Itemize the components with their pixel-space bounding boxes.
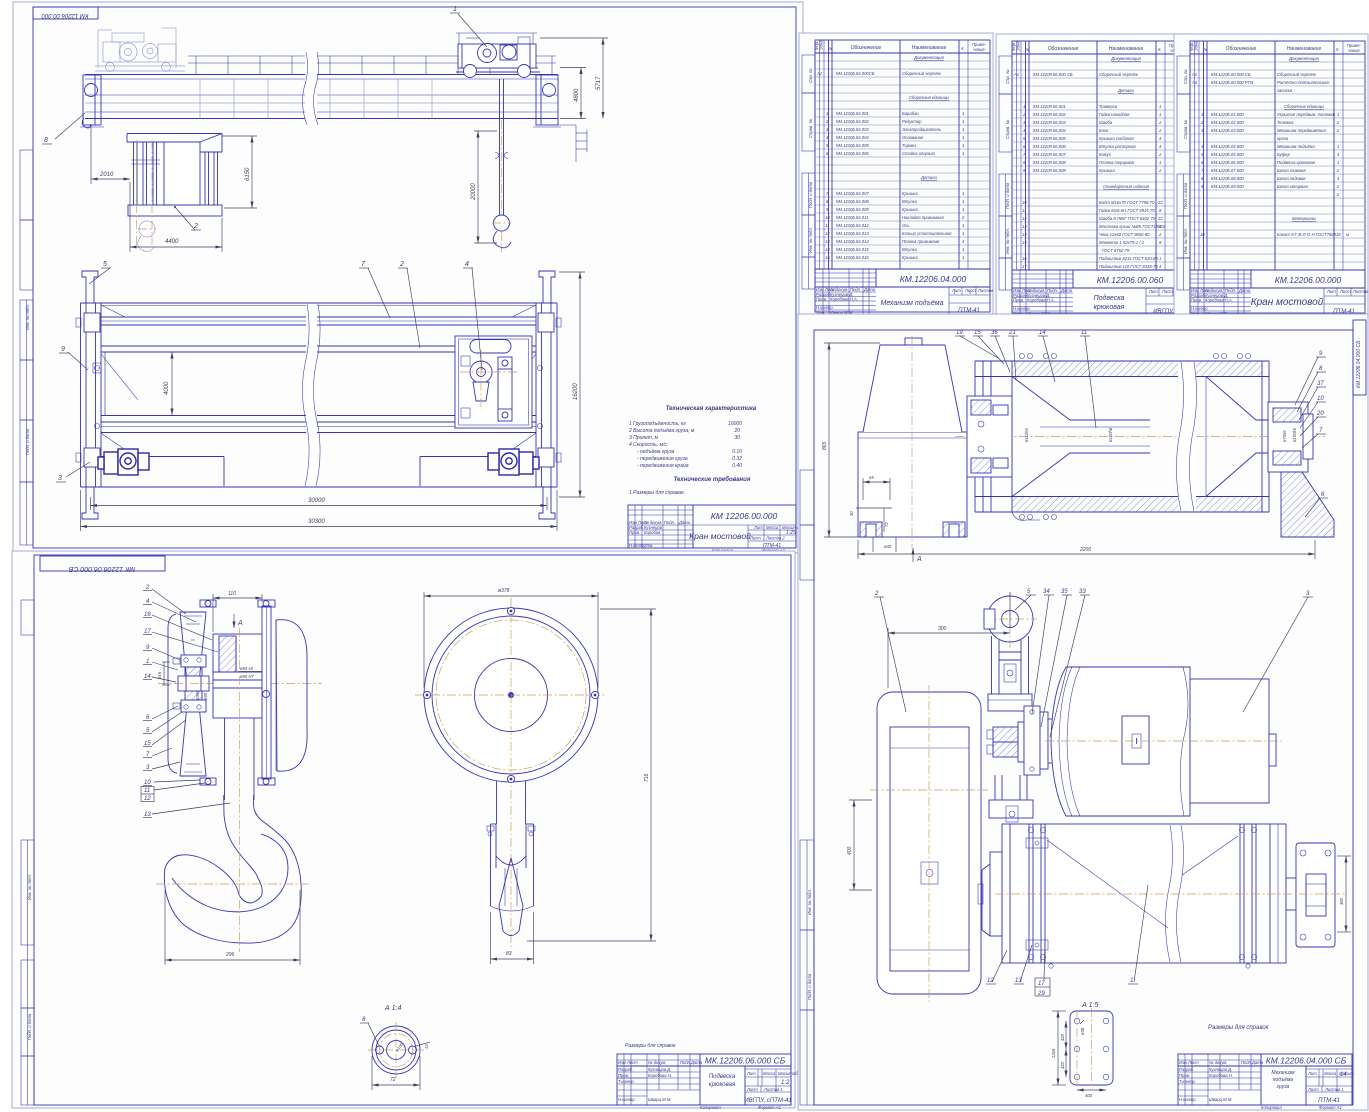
svg-text:Крышка: Крышка <box>902 191 918 196</box>
svg-text:Блок: Блок <box>1099 128 1109 133</box>
svg-text:Лит: Лит <box>753 525 763 530</box>
svg-text:КМ.12206.00.000: КМ.12206.00.000 <box>1275 275 1342 285</box>
svg-text:0.40: 0.40 <box>732 463 742 469</box>
svg-text:6150: 6150 <box>245 167 251 181</box>
svg-text:Гайка накидная: Гайка накидная <box>1099 112 1130 117</box>
svg-text:5: 5 <box>103 261 107 268</box>
svg-text:Укрытие передвиж. тележки: Укрытие передвиж. тележки <box>1277 112 1336 117</box>
svg-text:1: 1 <box>1337 112 1339 117</box>
svg-text:Подшипник 110 ГОСТ 8338-75: Подшипник 110 ГОСТ 8338-75 <box>1099 264 1158 269</box>
svg-text:2: 2 <box>193 223 198 230</box>
svg-text:ø16: ø16 <box>157 671 162 679</box>
svg-text:Масшт.: Масшт. <box>1339 1071 1355 1076</box>
svg-text:Балка концевая: Балка концевая <box>1277 184 1309 189</box>
svg-text:1: 1 <box>1159 256 1161 261</box>
svg-text:А1: А1 <box>816 71 822 76</box>
svg-text:Втулка: Втулка <box>902 199 918 204</box>
svg-text:13: 13 <box>1022 224 1027 229</box>
svg-text:Детали: Детали <box>1117 88 1134 93</box>
svg-text:А1: А1 <box>1013 72 1019 77</box>
svg-text:Лист: Лист <box>1307 1087 1319 1092</box>
svg-text:Тележка: Тележка <box>1277 120 1294 125</box>
svg-text:10: 10 <box>1022 200 1027 205</box>
svg-text:КМ.12209.06.007: КМ.12209.06.007 <box>1033 152 1066 157</box>
svg-text:20: 20 <box>733 428 740 434</box>
svg-text:Пров.: Пров. <box>618 1073 629 1078</box>
svg-text:420: 420 <box>1060 1033 1065 1041</box>
svg-text:КМ.12209.06.001: КМ.12209.06.001 <box>1033 104 1066 109</box>
svg-text:КМ.12206.04.002: КМ.12206.04.002 <box>836 119 869 124</box>
svg-text:Копировал: Копировал <box>700 1105 721 1110</box>
svg-text:Подп. и дата: Подп. и дата <box>25 428 30 455</box>
svg-text:Пров.: Пров. <box>1179 1073 1190 1078</box>
svg-text:КМ.12206.04.014: КМ.12206.04.014 <box>836 239 869 244</box>
svg-text:Масленка крыш.№ВК ГОСТ19853: Масленка крыш.№ВК ГОСТ19853 <box>1099 224 1166 229</box>
svg-text:крюковая: крюковая <box>1094 304 1125 311</box>
svg-text:17: 17 <box>144 629 151 635</box>
svg-text:716: 716 <box>644 773 650 782</box>
svg-text:10: 10 <box>825 215 830 220</box>
svg-text:крюковая: крюковая <box>709 1082 736 1088</box>
svg-text:10: 10 <box>1200 232 1205 237</box>
svg-text:Крышка скобяная: Крышка скобяная <box>1099 136 1134 141</box>
svg-text:34: 34 <box>1043 589 1050 595</box>
svg-text:Лист: Лист <box>746 1087 758 1092</box>
svg-text:КМ.12206.04.000 СБ: КМ.12206.04.000 СБ <box>1266 1056 1347 1066</box>
svg-text:записка: записка <box>1276 88 1293 93</box>
svg-text:Инв. № подл.: Инв. № подл. <box>25 304 30 330</box>
svg-text:Масса: Масса <box>766 525 779 530</box>
svg-text:2 Высота подъёма груза, м: 2 Высота подъёма груза, м <box>628 428 695 434</box>
svg-text:ГОСТ 8752-79: ГОСТ 8752-79 <box>1102 248 1130 253</box>
svg-text:Гайка М16-6Н ГОСТ 5915-70: Гайка М16-6Н ГОСТ 5915-70 <box>1099 208 1155 213</box>
svg-text:Н.контр.: Н.контр. <box>1179 1097 1197 1102</box>
svg-text:16: 16 <box>1336 232 1341 237</box>
svg-text:1: 1 <box>953 290 955 295</box>
svg-text:Техническая характеристика: Техническая характеристика <box>666 406 757 412</box>
svg-text:ø378: ø378 <box>498 588 510 594</box>
svg-text:КМ.12206.08.000: КМ.12206.08.000 <box>1211 176 1244 181</box>
svg-text:КМ.12206.04.006: КМ.12206.04.006 <box>836 151 869 156</box>
svg-text:Крышка: Крышка <box>1099 168 1115 173</box>
svg-text:КМ.12209.06.006: КМ.12209.06.006 <box>1033 144 1066 149</box>
svg-text:14: 14 <box>825 247 830 252</box>
svg-text:1: 1 <box>962 223 964 228</box>
svg-text:22: 22 <box>1157 216 1163 221</box>
svg-text:35: 35 <box>1061 589 1068 595</box>
svg-text:1: 1 <box>453 6 457 13</box>
svg-text:13: 13 <box>825 239 830 244</box>
svg-text:Подвеска: Подвеска <box>709 1074 736 1080</box>
svg-text:ø90: ø90 <box>203 692 208 700</box>
svg-text:Подп. и дата: Подп. и дата <box>807 973 812 1000</box>
svg-text:1: 1 <box>1159 104 1161 109</box>
svg-text:КМ.12206.04.015: КМ.12206.04.015 <box>836 247 869 252</box>
svg-text:Шайба 8 Л65Г ГОСТ 6402-70: Шайба 8 Л65Г ГОСТ 6402-70 <box>1099 216 1156 221</box>
svg-text:400: 400 <box>1085 1093 1093 1098</box>
svg-text:Стандартные изделия: Стандартные изделия <box>1103 184 1150 189</box>
svg-text:КМ.12209.06.004: КМ.12209.06.004 <box>1033 128 1066 133</box>
svg-text:Кузнецов Д.: Кузнецов Д. <box>1209 1067 1232 1072</box>
svg-text:1: 1 <box>1159 112 1161 117</box>
svg-text:16000: 16000 <box>728 421 742 427</box>
svg-text:КМ.12206.07.000: КМ.12206.07.000 <box>1211 168 1244 173</box>
svg-text:Подп. и дата: Подп. и дата <box>27 1013 32 1040</box>
svg-text:1: 1 <box>962 199 964 204</box>
svg-text:Траверса: Траверса <box>1099 104 1118 109</box>
svg-text:КМ.12209.06.000 СБ: КМ.12209.06.000 СБ <box>1033 72 1073 77</box>
svg-text:Накладка прижимная: Накладка прижимная <box>902 215 944 220</box>
svg-text:КМ.12206.04.003: КМ.12206.04.003 <box>836 127 869 132</box>
svg-text:Болт М16х70 ГОСТ 7798-70: Болт М16х70 ГОСТ 7798-70 <box>1099 200 1155 205</box>
svg-text:1: 1 <box>962 247 964 252</box>
svg-text:15: 15 <box>825 255 830 260</box>
svg-text:КМ.12206.04.016: КМ.12206.04.016 <box>836 255 869 260</box>
svg-text:КМ.12209.06.005: КМ.12209.06.005 <box>1033 136 1066 141</box>
svg-text:КМ.12209.06.003: КМ.12209.06.003 <box>1033 120 1066 125</box>
svg-text:Листов 2: Листов 2 <box>765 536 785 541</box>
svg-text:12: 12 <box>987 978 994 984</box>
svg-text:Втулка распорная: Втулка распорная <box>1099 144 1136 149</box>
svg-text:груза: груза <box>1277 1084 1290 1090</box>
svg-text:30300: 30300 <box>308 519 325 525</box>
svg-text:1: 1 <box>1159 160 1161 165</box>
svg-text:33: 33 <box>1079 589 1086 595</box>
svg-text:1: 1 <box>962 151 964 156</box>
svg-text:А: А <box>916 556 922 563</box>
svg-text:№ докум.: № докум. <box>648 1060 666 1065</box>
svg-text:А 1:5: А 1:5 <box>1081 1002 1098 1009</box>
svg-text:2010: 2010 <box>99 172 114 178</box>
svg-text:0.32: 0.32 <box>732 456 742 462</box>
svg-text:Материалы: Материалы <box>1292 216 1316 221</box>
svg-text:КМ.12206.06.000: КМ.12206.06.000 <box>1211 160 1244 165</box>
svg-text:Механизм передвижения: Механизм передвижения <box>1277 128 1326 133</box>
svg-text:1:2: 1:2 <box>781 1080 790 1086</box>
svg-text:Подвеска крюковая: Подвеска крюковая <box>1277 160 1316 165</box>
svg-text:ø75k6: ø75k6 <box>1282 430 1287 442</box>
svg-text:Подшипник 8211 ГОСТ 520-89: Подшипник 8211 ГОСТ 520-89 <box>1099 256 1158 261</box>
svg-text:ø30: ø30 <box>884 544 892 549</box>
svg-text:20000: 20000 <box>471 183 477 201</box>
svg-text:Крышка: Крышка <box>902 255 918 260</box>
svg-text:420: 420 <box>1060 1061 1065 1069</box>
svg-text:крана: крана <box>1277 136 1289 141</box>
svg-text:КМ.12206.04.000: КМ.12206.04.000 <box>1211 144 1244 149</box>
svg-text:Коробова Н.: Коробова Н. <box>1209 1073 1233 1078</box>
svg-text:КМ.12206.01.000: КМ.12206.01.000 <box>1211 112 1244 117</box>
svg-text:30: 30 <box>734 435 740 441</box>
svg-text:36: 36 <box>991 330 998 336</box>
svg-text:ПТМ-41: ПТМ-41 <box>958 308 980 314</box>
svg-text:КМ.12206.09.000: КМ.12206.09.000 <box>1211 184 1244 189</box>
svg-text:Электродвигатель: Электродвигатель <box>902 127 941 132</box>
svg-text:ø90 Н7: ø90 Н7 <box>240 674 254 679</box>
svg-text:1: 1 <box>962 207 964 212</box>
svg-text:Сборочный чертёж: Сборочный чертёж <box>1099 72 1139 77</box>
svg-text:Изм Лист: Изм Лист <box>1179 1060 1199 1065</box>
svg-text:Лит: Лит <box>746 1071 756 1076</box>
svg-text:30000: 30000 <box>308 498 325 504</box>
svg-text:1269: 1269 <box>1051 1048 1056 1058</box>
svg-text:Сборочные единицы: Сборочные единицы <box>1284 104 1324 109</box>
svg-text:КМ.12206.04.000: КМ.12206.04.000 <box>900 274 967 284</box>
svg-text:29: 29 <box>1037 991 1045 997</box>
svg-text:КМ.12206.04.013: КМ.12206.04.013 <box>836 231 869 236</box>
svg-text:37: 37 <box>1317 381 1324 387</box>
svg-text:Редуктор: Редуктор <box>902 119 922 124</box>
svg-text:1 Грузоподъёмность, кг: 1 Грузоподъёмность, кг <box>629 421 686 427</box>
svg-text:1: 1 <box>962 135 964 140</box>
svg-text:Шайба: Шайба <box>1099 120 1113 125</box>
svg-text:4: 4 <box>465 261 469 268</box>
svg-text:Планка торцевая: Планка торцевая <box>1099 160 1135 165</box>
svg-text:65: 65 <box>869 475 874 480</box>
svg-text:ø396: ø396 <box>195 690 200 700</box>
svg-text:Крышка: Крышка <box>902 207 918 212</box>
svg-text:14: 14 <box>424 1044 429 1049</box>
svg-text:№ докум.: № докум. <box>1209 1060 1227 1065</box>
svg-text:А: А <box>237 620 243 627</box>
svg-text:Кольцо уплотнительное: Кольцо уплотнительное <box>902 231 952 236</box>
svg-text:1: 1 <box>962 191 964 196</box>
svg-text:- передвижения груза: - передвижения груза <box>637 456 688 462</box>
svg-text:Т.контр.: Т.контр. <box>618 1079 635 1084</box>
svg-text:2: 2 <box>874 591 879 597</box>
svg-text:Ось: Ось <box>902 223 910 228</box>
svg-text:1: 1 <box>962 119 964 124</box>
svg-text:Чека 12х60 ГОСТ 9650-80: Чека 12х60 ГОСТ 9650-80 <box>1099 232 1150 237</box>
svg-text:КМ.12206.04.008: КМ.12206.04.008 <box>836 199 869 204</box>
svg-text:2: 2 <box>399 261 404 268</box>
svg-text:2: 2 <box>145 585 150 591</box>
svg-text:КМ.12206.00.000 РПЗ: КМ.12206.00.000 РПЗ <box>1211 80 1254 85</box>
svg-text:Листов 1: Листов 1 <box>1324 1087 1344 1092</box>
svg-text:МК.12206.06.000 СБ: МК.12206.06.000 СБ <box>705 1056 786 1066</box>
svg-text:4000: 4000 <box>164 381 170 395</box>
svg-text:1: 1 <box>1337 160 1339 165</box>
svg-text:72: 72 <box>390 1077 396 1083</box>
svg-text:Канат 9-Г-В-Л-О-Н ГОСТ7668: Канат 9-Г-В-Л-О-Н ГОСТ7668 <box>1277 232 1337 237</box>
svg-text:Утв.: Утв. <box>644 543 654 548</box>
svg-text:Сборочный чертёж: Сборочный чертёж <box>902 71 942 76</box>
svg-text:300: 300 <box>938 626 947 632</box>
svg-text:КМ.12206.04.004: КМ.12206.04.004 <box>836 135 869 140</box>
svg-text:1: 1 <box>1159 224 1161 229</box>
svg-text:Инв. № подл.: Инв. № подл. <box>807 889 812 915</box>
svg-text:12: 12 <box>144 796 151 802</box>
svg-text:72: 72 <box>884 522 889 527</box>
svg-text:Подп.: Подп. <box>1241 1060 1252 1065</box>
svg-text:Механизм подъёма: Механизм подъёма <box>881 299 944 307</box>
svg-text:10: 10 <box>144 780 151 786</box>
svg-text:21: 21 <box>1008 330 1016 336</box>
svg-text:Дата: Дата <box>1251 1060 1264 1065</box>
svg-text:5717: 5717 <box>596 76 602 90</box>
svg-text:КМ.12209.06.002: КМ.12209.06.002 <box>1033 112 1066 117</box>
svg-text:4400: 4400 <box>165 239 179 245</box>
svg-text:Размеры для справок: Размеры для справок <box>1208 1025 1270 1031</box>
svg-text:11: 11 <box>144 788 150 794</box>
svg-text:КМ.12209.06.008: КМ.12209.06.008 <box>1033 160 1066 165</box>
svg-text:Подп.: Подп. <box>680 1060 691 1065</box>
svg-text:Разраб.: Разраб. <box>618 1067 633 1072</box>
svg-text:11: 11 <box>1081 330 1087 336</box>
svg-text:Тормоз: Тормоз <box>902 143 916 148</box>
svg-text:ø112k6: ø112k6 <box>1024 428 1029 442</box>
svg-text:ø100k6: ø100k6 <box>1292 427 1297 442</box>
svg-text:1: 1 <box>962 111 964 116</box>
svg-text:9: 9 <box>61 346 65 353</box>
svg-text:А1: А1 <box>1191 72 1197 77</box>
svg-text:12: 12 <box>825 231 830 236</box>
svg-text:1: 1 <box>1130 978 1133 984</box>
svg-text:400: 400 <box>847 846 853 855</box>
svg-text:Детали: Детали <box>920 175 937 180</box>
svg-text:10: 10 <box>1317 396 1324 402</box>
svg-text:Расчётно-пояснительная: Расчётно-пояснительная <box>1277 80 1329 85</box>
svg-text:22: 22 <box>1157 200 1163 205</box>
svg-text:16: 16 <box>1022 256 1027 261</box>
svg-text:КМ.12206.04.000 СБ: КМ.12206.04.000 СБ <box>1356 340 1362 388</box>
svg-text:Коробов: Коробов <box>644 530 661 535</box>
svg-text:Кузнецов Д.: Кузнецов Д. <box>648 1067 671 1072</box>
svg-text:А 1:4: А 1:4 <box>384 1005 401 1012</box>
svg-text:Механизм подъёма: Механизм подъёма <box>1277 144 1315 149</box>
svg-text:15: 15 <box>144 741 151 747</box>
svg-text:Пров.: Пров. <box>629 530 640 535</box>
svg-text:4800: 4800 <box>574 88 580 102</box>
svg-text:Кран мостовой: Кран мостовой <box>689 531 751 541</box>
svg-text:360: 360 <box>1339 897 1344 905</box>
svg-text:Лист: Лист <box>749 536 761 541</box>
svg-text:3 Пролет, м: 3 Пролет, м <box>629 435 659 441</box>
svg-text:Подп.: Подп. <box>664 520 675 525</box>
svg-text:Копировал: Копировал <box>1261 1105 1282 1110</box>
svg-text:83: 83 <box>506 951 512 957</box>
svg-text:Т.контр.: Т.контр. <box>1179 1079 1196 1084</box>
svg-text:Формат А1: Формат А1 <box>1319 1105 1342 1110</box>
svg-text:0.10: 0.10 <box>732 449 742 455</box>
svg-text:Масштаб: Масштаб <box>778 1071 798 1076</box>
svg-text:КМ.12206.05.000: КМ.12206.05.000 <box>1211 152 1244 157</box>
svg-text:Масса: Масса <box>763 1071 776 1076</box>
svg-text:14: 14 <box>1039 330 1046 336</box>
svg-text:13: 13 <box>144 812 151 818</box>
svg-text:Документация: Документация <box>913 55 944 60</box>
svg-text:1: 1 <box>962 255 964 260</box>
svg-text:1: 1 <box>146 659 149 665</box>
svg-text:Коробова Н.: Коробова Н. <box>648 1073 672 1078</box>
svg-text:Масса: Масса <box>1324 1071 1337 1076</box>
svg-text:13: 13 <box>1015 978 1022 984</box>
svg-text:Буфер: Буфер <box>1277 152 1291 157</box>
svg-text:Балка ходовая: Балка ходовая <box>1277 176 1306 181</box>
svg-text:110: 110 <box>228 591 236 597</box>
svg-text:15: 15 <box>974 330 981 336</box>
svg-text:Документация: Документация <box>1110 56 1141 61</box>
svg-text:Барабан: Барабан <box>902 111 919 116</box>
svg-text:Механизм: Механизм <box>1271 1070 1295 1076</box>
svg-text:20: 20 <box>1316 411 1324 417</box>
svg-text:КМ.12206.00.000 СБ: КМ.12206.00.000 СБ <box>1211 72 1251 77</box>
svg-text:КМ.12206.02.000: КМ.12206.02.000 <box>1211 120 1244 125</box>
svg-text:КМ.12206.03.000: КМ.12206.03.000 <box>1211 128 1244 133</box>
svg-text:Листов 1: Листов 1 <box>763 1087 783 1092</box>
svg-text:Подвеска: Подвеска <box>1094 294 1125 302</box>
svg-text:30: 30 <box>849 511 854 516</box>
svg-text:Шварц М.М.: Шварц М.М. <box>648 1097 671 1102</box>
svg-text:КМ.12206.04.000СБ: КМ.12206.04.000СБ <box>836 71 875 76</box>
svg-text:16200: 16200 <box>573 383 579 400</box>
svg-text:2200: 2200 <box>1079 547 1091 553</box>
svg-text:1:25: 1:25 <box>786 530 796 536</box>
svg-text:Балка главная: Балка главная <box>1277 168 1306 173</box>
svg-text:КМ.12206.04.005: КМ.12206.04.005 <box>836 143 869 148</box>
svg-text:19: 19 <box>956 330 963 336</box>
svg-text:1 Размеры для справок.: 1 Размеры для справок. <box>629 490 685 496</box>
svg-text:КМ.12206.04.001: КМ.12206.04.001 <box>836 111 869 116</box>
svg-text:Дата: Дата <box>678 520 691 525</box>
svg-text:17: 17 <box>1038 981 1045 987</box>
svg-text:1: 1 <box>1337 144 1339 149</box>
svg-text:8: 8 <box>44 137 48 144</box>
svg-text:м: м <box>1346 232 1349 237</box>
svg-text:- подъёма груза: - подъёма груза <box>637 449 675 455</box>
svg-text:12: 12 <box>1022 216 1027 221</box>
svg-text:Разраб.: Разраб. <box>1179 1067 1194 1072</box>
svg-text:Сборочные единицы: Сборочные единицы <box>909 95 949 100</box>
svg-text:17: 17 <box>1022 264 1027 269</box>
svg-text:Основание: Основание <box>902 135 924 140</box>
svg-text:1: 1 <box>962 231 964 236</box>
svg-text:Манжета 1-52х75-1 / 2: Манжета 1-52х75-1 / 2 <box>1099 240 1145 245</box>
svg-text:1: 1 <box>1201 112 1203 117</box>
svg-text:КМ 12206.00.000: КМ 12206.00.000 <box>711 511 778 521</box>
svg-text:Стойка опорная: Стойка опорная <box>902 151 936 156</box>
svg-text:Кожух: Кожух <box>1099 152 1112 157</box>
svg-text:1: 1 <box>962 143 964 148</box>
svg-text:Шварц М.М.: Шварц М.М. <box>1209 1097 1232 1102</box>
svg-text:ИВГПУ, сПТМ-41: ИВГПУ, сПТМ-41 <box>744 1098 791 1104</box>
svg-text:Н.контр.: Н.контр. <box>618 1097 636 1102</box>
svg-text:А4: А4 <box>1191 80 1198 85</box>
svg-text:14: 14 <box>144 674 151 680</box>
svg-text:Втулка: Втулка <box>902 247 918 252</box>
svg-text:1: 1 <box>1023 104 1025 109</box>
svg-text:КМ 12206.00.000: КМ 12206.00.000 <box>41 12 89 18</box>
svg-text:Планка прижимная: Планка прижимная <box>902 239 940 244</box>
svg-text:Документация: Документация <box>1288 56 1319 61</box>
svg-text:КМ.12206.04.009: КМ.12206.04.009 <box>836 207 869 212</box>
svg-text:Кран мостовой: Кран мостовой <box>1251 297 1324 308</box>
svg-text:Технические требования: Технические требования <box>674 476 751 483</box>
svg-text:865: 865 <box>822 441 828 450</box>
svg-text:Изм Лист: Изм Лист <box>618 1060 638 1065</box>
svg-text:11: 11 <box>825 223 829 228</box>
svg-text:14: 14 <box>1022 232 1027 237</box>
svg-text:КМ.12209.06.009: КМ.12209.06.009 <box>1033 168 1066 173</box>
svg-text:15: 15 <box>1022 240 1027 245</box>
svg-text:1: 1 <box>962 127 964 132</box>
svg-text:КМ.12206.00.060: КМ.12206.00.060 <box>1097 275 1164 285</box>
svg-text:Инв. № подл.: Инв. № подл. <box>27 874 32 900</box>
svg-text:Формат А1: Формат А1 <box>758 1105 781 1110</box>
svg-text:11: 11 <box>1022 208 1026 213</box>
svg-text:- передвижения крана: - передвижения крана <box>637 463 689 469</box>
svg-text:Сборочный чертёж: Сборочный чертёж <box>1277 72 1317 77</box>
svg-text:ø100h8: ø100h8 <box>1108 427 1113 442</box>
